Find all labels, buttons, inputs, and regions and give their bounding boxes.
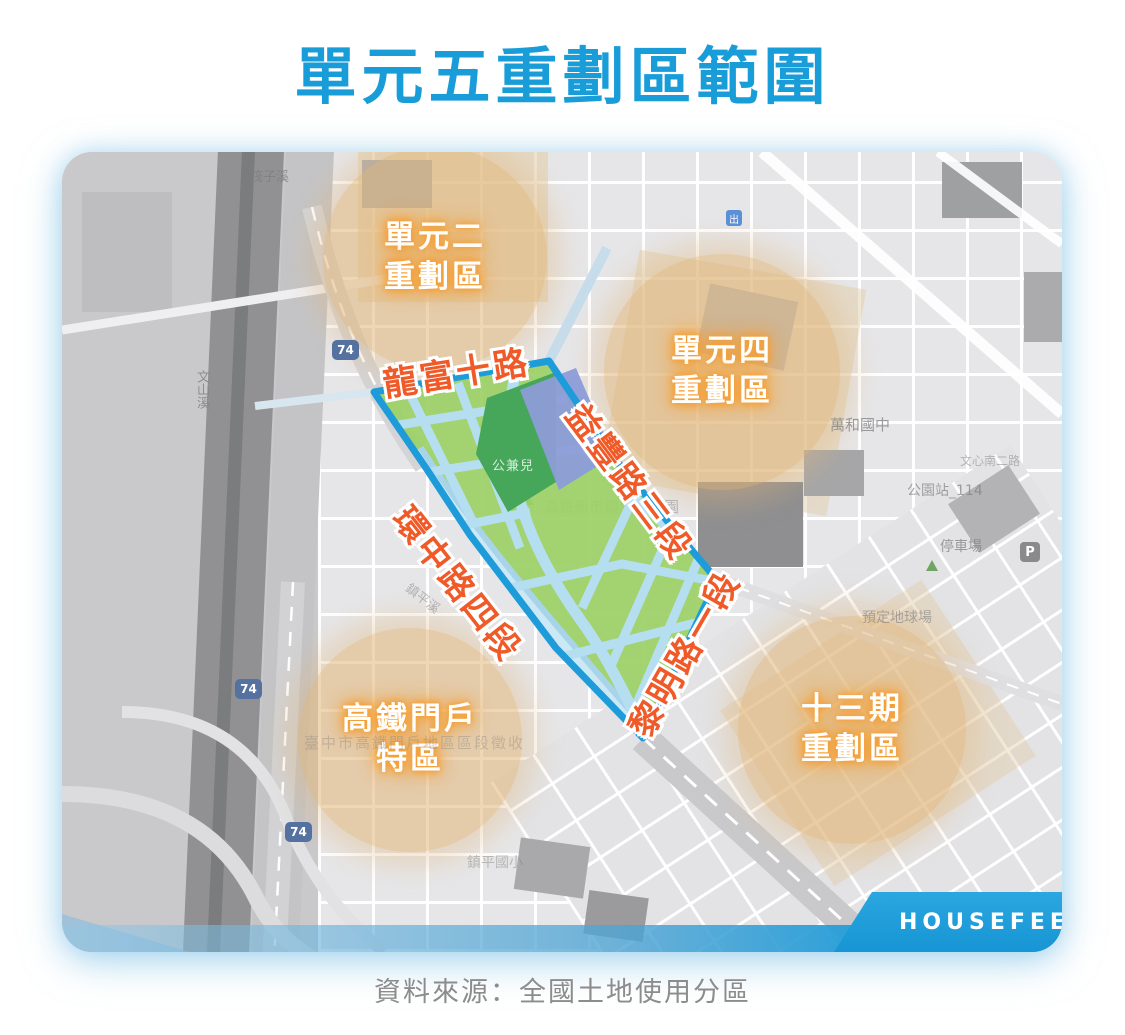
park-label: 公兼兒 bbox=[492, 459, 534, 474]
map-card: 單元二 重劃區 單元四 重劃區 高鐵門戶 特區 十三期 重劃區 bbox=[62, 152, 1062, 952]
infographic-page: 單元五重劃區範圍 bbox=[0, 0, 1125, 1035]
housefeel-logo-text: HOUSEFEEL bbox=[899, 910, 1062, 935]
source-caption: 資料來源：全國土地使用分區 bbox=[0, 970, 1125, 1009]
unit5-zone: 公兼兒 bbox=[62, 152, 1062, 952]
housefeel-badge: HOUSEFEEL bbox=[834, 892, 1062, 952]
page-title: 單元五重劃區範圍 bbox=[0, 26, 1125, 116]
